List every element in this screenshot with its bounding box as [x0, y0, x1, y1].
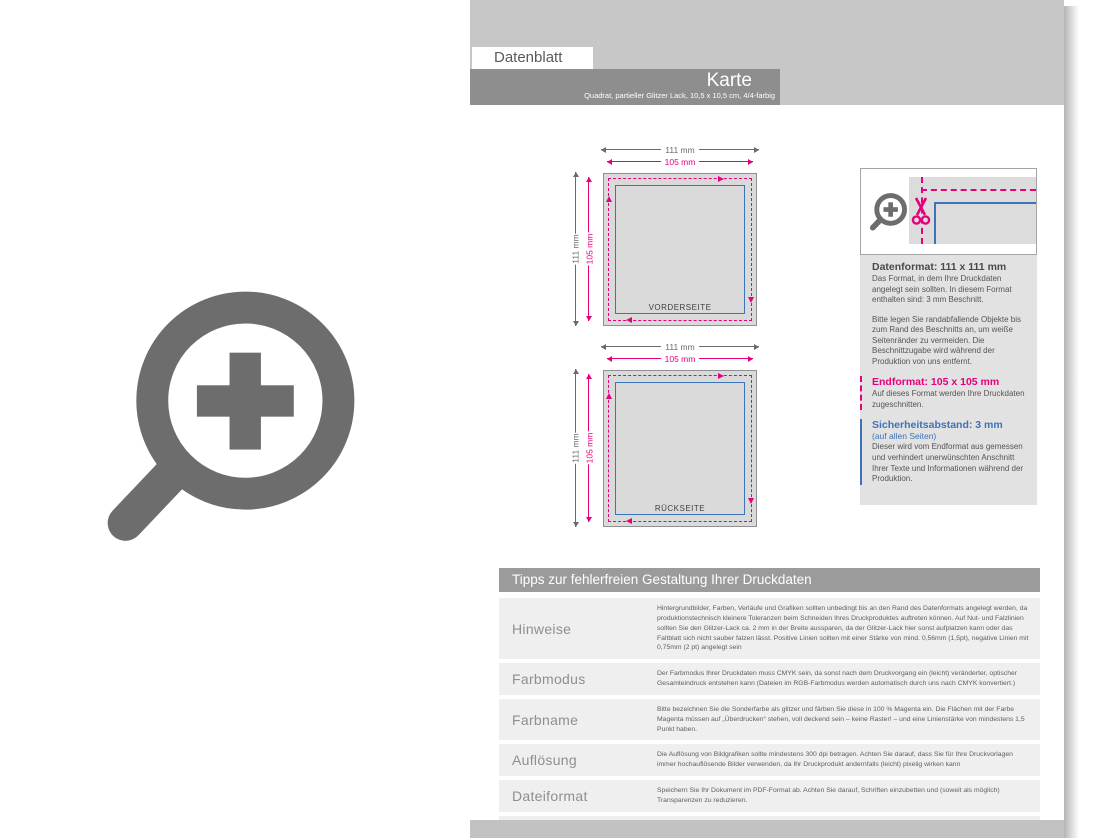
- safety-line-front: [615, 185, 745, 314]
- zoom-plus-icon-small: [869, 193, 907, 232]
- title-bar: Karte Quadrat, partieller Glitzer Lack, …: [470, 69, 780, 105]
- row-label: Farbmodus: [499, 665, 657, 693]
- sicherheitsabstand-text: Dieser wird vom Endformat aus gemessen u…: [872, 442, 1029, 484]
- sicherheitsabstand-subtitle: (auf allen Seiten): [872, 431, 1029, 441]
- row-text: Der Farbmodus Ihrer Druckdaten muss CMYK…: [657, 663, 1040, 695]
- zoom-plus-icon: [100, 290, 355, 552]
- endformat-section: Endformat: 105 x 105 mm Auf dieses Forma…: [860, 376, 1029, 410]
- dim-height-outer-front: 111 mm: [570, 172, 582, 326]
- row-label: Hinweise: [499, 615, 657, 643]
- row-text: Speichern Sie Ihr Dokument im PDF-Format…: [657, 780, 1040, 812]
- scissors-icon: [911, 197, 931, 227]
- safety-line-detail-h: [934, 202, 1036, 204]
- datenformat-title: Datenformat: 111 x 111 mm: [872, 261, 1029, 273]
- bleed-note-section: Bitte legen Sie randabfallende Objekte b…: [860, 315, 1029, 368]
- back-label: RÜCKSEITE: [604, 504, 756, 513]
- page-title: Karte: [470, 69, 780, 91]
- sicherheitsabstand-title: Sicherheitsabstand: 3 mm: [872, 419, 1029, 431]
- table-row: Farbmodus Der Farbmodus Ihrer Druckdaten…: [499, 663, 1040, 695]
- datenformat-section: Datenformat: 111 x 111 mm Das Format, in…: [860, 261, 1029, 306]
- dim-width-inner-back: 105 mm: [607, 353, 753, 365]
- page-edge-shadow: [1064, 6, 1079, 838]
- endformat-text: Auf dieses Format werden Ihre Druckdaten…: [872, 389, 1029, 410]
- sicherheitsabstand-section: Sicherheitsabstand: 3 mm (auf allen Seit…: [860, 419, 1029, 484]
- bleed-note-text: Bitte legen Sie randabfallende Objekte b…: [872, 315, 1029, 368]
- datasheet-page: Datenblatt Karte Quadrat, partieller Gli…: [0, 0, 1117, 838]
- bleed-line-detail-h: [921, 189, 1036, 191]
- safety-line-detail-v: [934, 202, 936, 244]
- page-subtitle: Quadrat, partieller Glitzer Lack, 10,5 x…: [470, 91, 780, 101]
- datenformat-text: Das Format, in dem Ihre Druckdaten angel…: [872, 274, 1029, 306]
- datenblatt-tab: Datenblatt: [472, 47, 593, 69]
- footer-band: [470, 820, 1064, 838]
- safety-line-back: [615, 382, 745, 515]
- row-label: Dateiformat: [499, 782, 657, 810]
- tips-table: Tipps zur fehlerfreien Gestaltung Ihrer …: [499, 568, 1040, 838]
- row-text: Die Auflösung von Bildgrafiken sollte mi…: [657, 744, 1040, 776]
- tips-table-header: Tipps zur fehlerfreien Gestaltung Ihrer …: [499, 568, 1040, 592]
- endformat-title: Endformat: 105 x 105 mm: [872, 376, 1029, 388]
- table-row: Auflösung Die Auflösung von Bildgrafiken…: [499, 744, 1040, 776]
- row-label: Auflösung: [499, 746, 657, 774]
- dim-width-outer-back: 111 mm: [601, 341, 759, 353]
- row-text: Bitte bezeichnen Sie die Sonderfarbe als…: [657, 699, 1040, 741]
- dim-width-inner-front: 105 mm: [607, 156, 753, 168]
- table-row: Farbname Bitte bezeichnen Sie die Sonder…: [499, 699, 1040, 741]
- table-row: Hinweise Hintergrundbilder, Farben, Verl…: [499, 598, 1040, 659]
- dim-height-inner-back: 105 mm: [583, 374, 595, 522]
- card-back-diagram: RÜCKSEITE: [603, 370, 757, 527]
- format-info-panel: Datenformat: 111 x 111 mm Das Format, in…: [860, 255, 1037, 505]
- row-text: Hintergrundbilder, Farben, Verläufe und …: [657, 598, 1040, 659]
- corner-zoom-thumbnail: [860, 168, 1037, 255]
- dim-width-outer-front: 111 mm: [601, 144, 759, 156]
- card-corner-detail: [909, 177, 1036, 244]
- row-label: Farbname: [499, 706, 657, 734]
- dim-height-outer-back: 111 mm: [570, 369, 582, 527]
- table-row: Dateiformat Speichern Sie Ihr Dokument i…: [499, 780, 1040, 812]
- dim-height-inner-front: 105 mm: [583, 177, 595, 321]
- card-front-diagram: VORDERSEITE: [603, 173, 757, 326]
- front-label: VORDERSEITE: [604, 303, 756, 312]
